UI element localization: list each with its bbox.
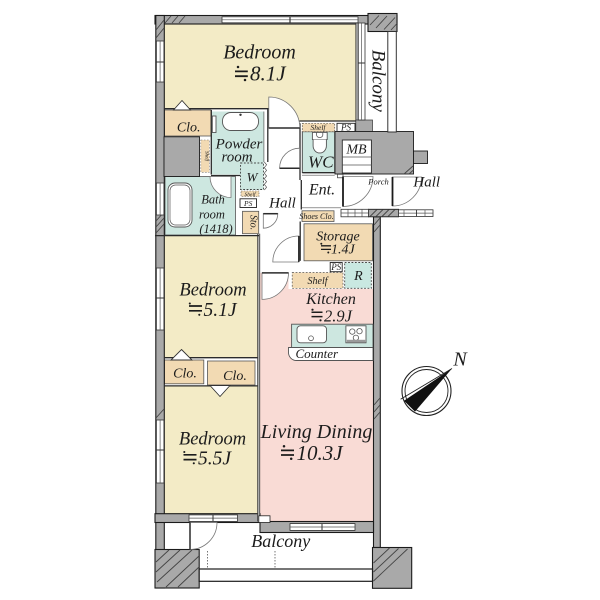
svg-text:Balcony: Balcony (368, 50, 389, 113)
svg-text:Shelf: Shelf (245, 191, 257, 198)
svg-text:5.1J: 5.1J (204, 300, 238, 321)
svg-text:Balcony: Balcony (251, 531, 310, 551)
svg-text:Living Dining: Living Dining (260, 421, 373, 443)
svg-text:PS: PS (243, 199, 253, 208)
svg-text:room: room (199, 208, 225, 222)
svg-text:Clo.: Clo. (173, 367, 197, 382)
svg-text:Bedroom: Bedroom (223, 42, 296, 64)
svg-text:Shelf: Shelf (308, 276, 329, 287)
svg-text:Hall: Hall (412, 174, 440, 190)
svg-text:Ent.: Ent. (308, 182, 335, 199)
svg-text:Kitchen: Kitchen (305, 291, 356, 308)
svg-text:N: N (452, 349, 468, 371)
svg-text:Shelf: Shelf (203, 151, 208, 162)
svg-text:PS: PS (330, 262, 341, 272)
svg-text:Shoes Clo.: Shoes Clo. (299, 212, 333, 221)
svg-text:2.9J: 2.9J (324, 307, 353, 326)
svg-text:1.4J: 1.4J (331, 243, 356, 258)
svg-text:Porch: Porch (367, 177, 388, 187)
svg-text:Shelf: Shelf (311, 123, 327, 132)
svg-text:Bath: Bath (201, 193, 225, 207)
svg-text:W: W (247, 170, 259, 185)
svg-text:5.5J: 5.5J (198, 449, 232, 470)
svg-text:PS: PS (340, 123, 351, 133)
svg-text:Clo.: Clo. (177, 121, 201, 136)
svg-text:Bedroom: Bedroom (179, 430, 246, 450)
svg-text:MB: MB (345, 143, 367, 158)
svg-text:Hall: Hall (268, 196, 296, 212)
svg-text:Clo.: Clo. (223, 369, 247, 384)
svg-text:room: room (221, 150, 252, 166)
svg-text:Sto.: Sto. (248, 215, 259, 230)
svg-text:Counter: Counter (296, 346, 340, 361)
svg-text:8.1J: 8.1J (250, 61, 287, 85)
svg-text:R: R (353, 269, 363, 284)
svg-text:(1418): (1418) (199, 222, 232, 236)
svg-text:WC: WC (308, 152, 334, 171)
svg-text:10.3J: 10.3J (297, 441, 345, 465)
svg-text:Bedroom: Bedroom (179, 281, 246, 301)
